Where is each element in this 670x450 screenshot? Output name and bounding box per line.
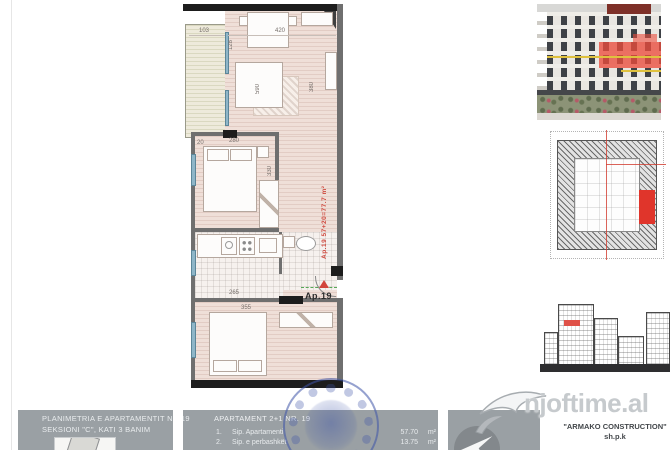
elevation-building — [594, 318, 618, 366]
dim-balcony-width: 103 — [199, 28, 209, 34]
dimension-line — [228, 35, 336, 36]
pillow — [207, 149, 229, 161]
tv-unit — [325, 52, 337, 90]
bath-sink — [283, 236, 295, 248]
sheet-edge-line — [11, 0, 12, 450]
drawing-title: PLANIMETRIA E APARTAMENTIT NR.19 SEKSION… — [42, 414, 190, 435]
title-block-divider — [438, 410, 448, 450]
mini-plan-shape — [66, 437, 100, 450]
dim-bedroom2-width: 355 — [241, 305, 251, 311]
bedroom2-window — [191, 322, 196, 358]
elevation-ground-line — [540, 364, 670, 372]
balcony-door-window — [225, 32, 229, 74]
apartment-highlight-overlay-2 — [633, 34, 657, 42]
render-landscaping — [537, 95, 661, 113]
building-render-photo — [537, 4, 661, 120]
row-value: 57.70 — [382, 429, 418, 436]
render-balcony-column — [537, 12, 547, 92]
dining-chair — [288, 16, 297, 26]
row-number: 1. — [216, 429, 232, 436]
dining-chair — [239, 16, 248, 26]
title-block: PLANIMETRIA E APARTAMENTIT NR.19 SEKSION… — [18, 410, 540, 450]
drawing-title-line2: SEKSIONI "C", KATI 3 BANIM — [42, 425, 190, 436]
company-name-line: "ARMAKO CONSTRUCTION" — [562, 422, 668, 432]
floor-plan: Ap.19 Ap.19 57+20=77.7 m² 420 103 128 59… — [183, 4, 347, 390]
dim-window: 128 — [228, 40, 234, 50]
row-unit: m² — [418, 439, 436, 446]
render-walkway — [537, 113, 661, 120]
floor-highlight-line — [547, 56, 661, 58]
sideboard — [301, 12, 333, 26]
elevation-building — [646, 312, 670, 366]
siteplan-axis-line-horizontal — [606, 164, 666, 165]
siteplan-unit-highlight — [639, 190, 655, 224]
nightstand — [257, 146, 269, 158]
render-roof-block — [607, 4, 651, 14]
scanned-floor-plan-sheet: Ap.19 Ap.19 57+20=77.7 m² 420 103 128 59… — [0, 0, 670, 450]
pillow — [238, 360, 262, 372]
dim-bedroom1-width: 280 — [229, 138, 239, 144]
living-window — [225, 90, 229, 126]
floor-highlight-line-2 — [621, 70, 661, 72]
pillow — [230, 149, 252, 161]
toilet — [296, 236, 316, 251]
wall-pier-2 — [279, 296, 303, 304]
siteplan-courtyard — [574, 158, 640, 232]
dim-living-width: 420 — [275, 28, 285, 34]
elevation-building — [618, 336, 644, 366]
key-site-plan — [547, 128, 667, 262]
njoftime-logo-text: njoftime.al — [524, 388, 649, 419]
elevation-building — [558, 304, 594, 366]
kitchen-window — [191, 250, 196, 276]
dimension-line — [189, 35, 225, 36]
wall-pier-entrance — [331, 266, 343, 276]
stove — [239, 237, 255, 255]
entrance-label: Ap.19 — [305, 291, 332, 301]
wall-right-upper — [337, 4, 343, 280]
elevation-drawing — [540, 288, 670, 380]
washing-machine-door — [225, 241, 233, 249]
wall-bedroom1-kitchen — [191, 228, 279, 232]
dim-wall: 20 — [197, 140, 204, 146]
apartment-highlight-overlay — [599, 42, 661, 68]
kitchen-sink — [259, 238, 277, 253]
drawing-title-line1: PLANIMETRIA E APARTAMENTIT NR.19 — [42, 414, 190, 425]
stamp-emblem — [305, 400, 357, 450]
dim-hall-length: 380 — [309, 82, 315, 92]
watermark: njoftime.al "ARMAKO CONSTRUCTION" sh.p.k — [478, 386, 670, 450]
wall-top — [183, 4, 337, 11]
mini-plan-thumbnail — [54, 437, 116, 450]
bedroom1-window — [191, 154, 196, 186]
area-annotation: Ap.19 57+20=77.7 m² — [321, 179, 328, 259]
title-block-divider — [173, 410, 183, 450]
company-suffix-line: sh.p.k — [562, 432, 668, 442]
row-number: 2. — [216, 439, 232, 446]
wardrobe-1 — [259, 180, 279, 228]
dim-bedroom1-length: 330 — [267, 166, 273, 176]
elevation-unit-highlight — [564, 320, 580, 326]
wardrobe-2 — [279, 312, 333, 328]
balcony-floor — [185, 24, 227, 138]
entrance-marker-icon — [319, 280, 329, 288]
siteplan-axis-line-vertical — [606, 130, 607, 260]
wall-pier-1 — [223, 130, 237, 138]
wall-right-lower — [337, 298, 343, 382]
pillow — [213, 360, 237, 372]
row-value: 13.75 — [382, 439, 418, 446]
elevation-building — [544, 332, 558, 366]
company-name: "ARMAKO CONSTRUCTION" sh.p.k — [562, 422, 668, 442]
row-unit: m² — [418, 429, 436, 436]
dim-kitchen-width: 265 — [229, 290, 239, 296]
dim-living-length: 590 — [255, 84, 261, 94]
